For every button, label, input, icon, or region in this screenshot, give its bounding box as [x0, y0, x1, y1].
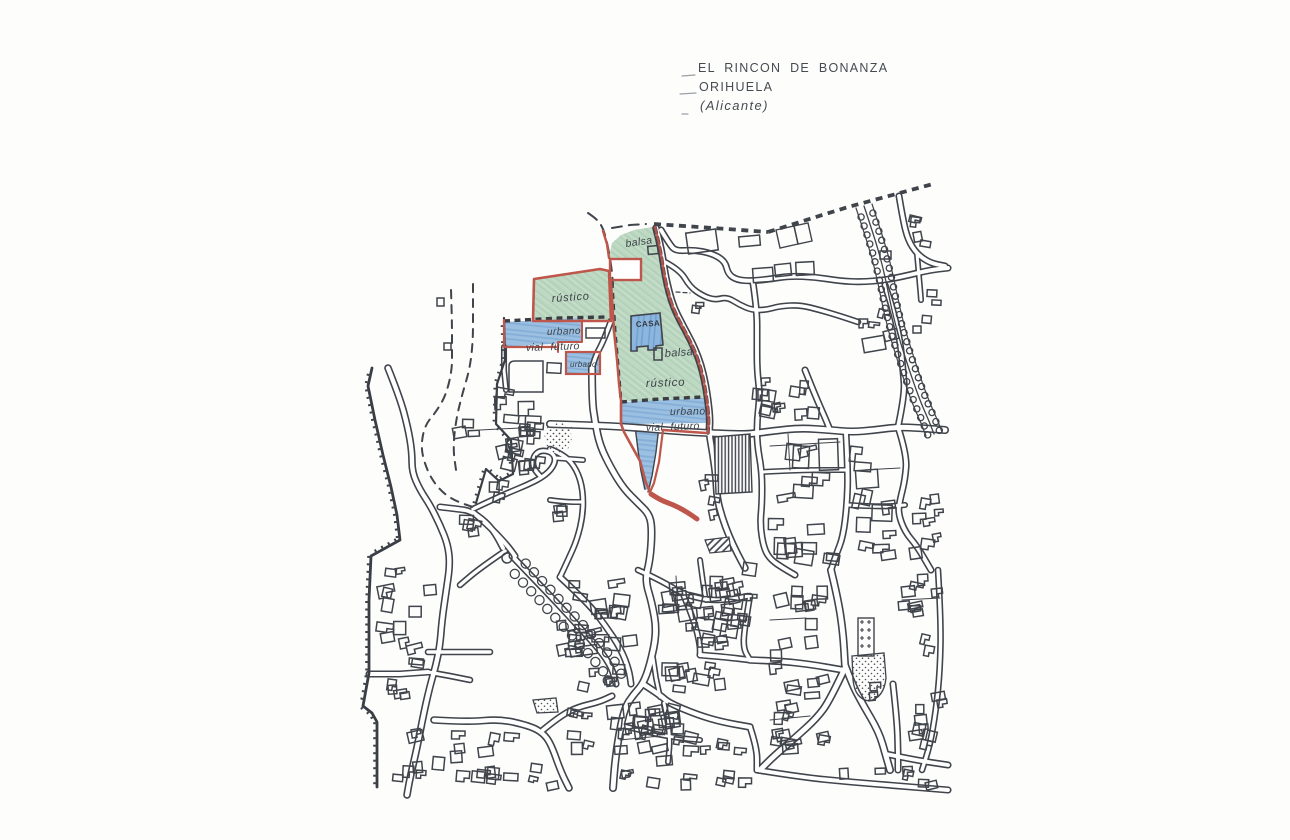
svg-text:rústico: rústico — [646, 377, 686, 390]
svg-text:(Alicante): (Alicante) — [700, 98, 769, 113]
svg-text:balsa: balsa — [664, 346, 693, 360]
svg-text:CASA: CASA — [636, 319, 661, 329]
svg-text:urbano: urbano — [670, 405, 706, 418]
svg-text:ORIHUELA: ORIHUELA — [699, 80, 773, 94]
svg-text:EL RINCON DE BONANZA: EL RINCON DE BONANZA — [698, 61, 888, 75]
svg-text:urbano: urbano — [570, 360, 597, 369]
svg-text:vial futuro: vial futuro — [646, 420, 700, 434]
svg-text:vial futuro: vial futuro — [526, 340, 580, 354]
svg-text:urbano: urbano — [547, 326, 582, 338]
